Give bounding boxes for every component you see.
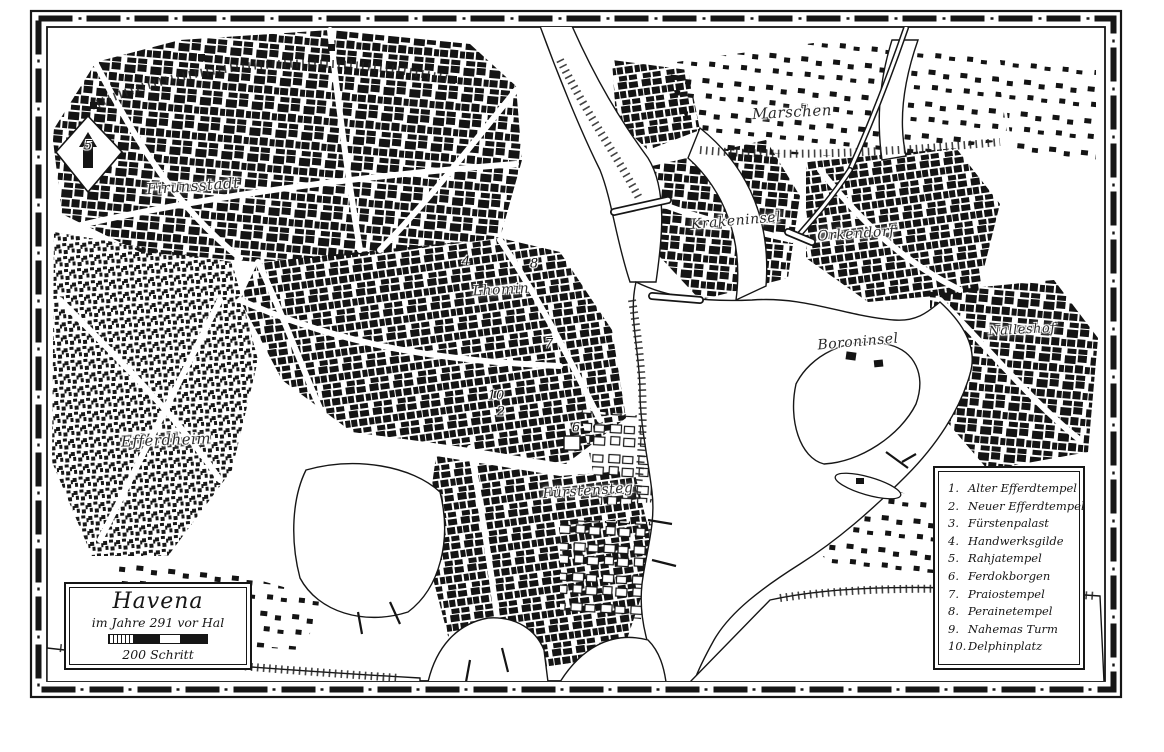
title-cartouche: Havena im Jahre 291 vor Hal 200 Schritt	[64, 582, 252, 670]
legend-item: 1.Alter Efferdtempel	[948, 480, 1073, 498]
legend-item-number: 8.	[948, 603, 968, 621]
legend-item-name: Ferdokborgen	[968, 568, 1073, 586]
legend-item-number: 7.	[948, 586, 968, 604]
legend-item-name: Alter Efferdtempel	[968, 480, 1077, 498]
legend-item: 7.Praiostempel	[948, 586, 1073, 604]
scale-bar-white-segment	[159, 635, 181, 643]
legend-item: 10.Delphinplatz	[948, 638, 1073, 656]
legend-item-number: 10.	[948, 638, 968, 656]
scale-label: 200 Schritt	[122, 647, 193, 662]
legend-item-number: 1.	[948, 480, 968, 498]
legend-item-name: Rahjatempel	[968, 550, 1073, 568]
legend-item-name: Delphinplatz	[968, 638, 1073, 656]
legend-item-number: 4.	[948, 533, 968, 551]
legend-item: 2.Neuer Efferdtempel	[948, 498, 1073, 516]
legend-item-number: 6.	[948, 568, 968, 586]
legend-item-number: 5.	[948, 550, 968, 568]
legend-item-name: Fürstenpalast	[968, 515, 1073, 533]
legend-item: 9.Nahemas Turm	[948, 621, 1073, 639]
legend-item-name: Neuer Efferdtempel	[968, 498, 1085, 516]
legend-item-number: 3.	[948, 515, 968, 533]
scale-bar	[108, 634, 208, 644]
scale-bar-hatch-segment	[109, 635, 133, 643]
map-title: Havena	[112, 591, 203, 613]
scale-bar-black-segment	[181, 635, 207, 643]
havena-city-map: FirunsstadtLhominEfferdheimFürstenstegMa…	[0, 0, 1164, 752]
legend-item-name: Praiostempel	[968, 586, 1073, 604]
legend-item: 6.Ferdokborgen	[948, 568, 1073, 586]
legend-item-number: 9.	[948, 621, 968, 639]
map-legend: 1.Alter Efferdtempel2.Neuer Efferdtempel…	[933, 466, 1085, 670]
legend-item-name: Perainetempel	[968, 603, 1073, 621]
legend-item: 5.Rahjatempel	[948, 550, 1073, 568]
legend-item-name: Handwerksgilde	[968, 533, 1073, 551]
legend-list: 1.Alter Efferdtempel2.Neuer Efferdtempel…	[938, 471, 1080, 665]
title-cartouche-inner: Havena im Jahre 291 vor Hal 200 Schritt	[69, 587, 247, 665]
map-subtitle: im Jahre 291 vor Hal	[92, 615, 224, 630]
legend-item: 4.Handwerksgilde	[948, 533, 1073, 551]
legend-item: 8.Perainetempel	[948, 603, 1073, 621]
legend-item: 3.Fürstenpalast	[948, 515, 1073, 533]
scale-bar-black-segment	[133, 635, 159, 643]
legend-item-name: Nahemas Turm	[968, 621, 1073, 639]
legend-item-number: 2.	[948, 498, 968, 516]
